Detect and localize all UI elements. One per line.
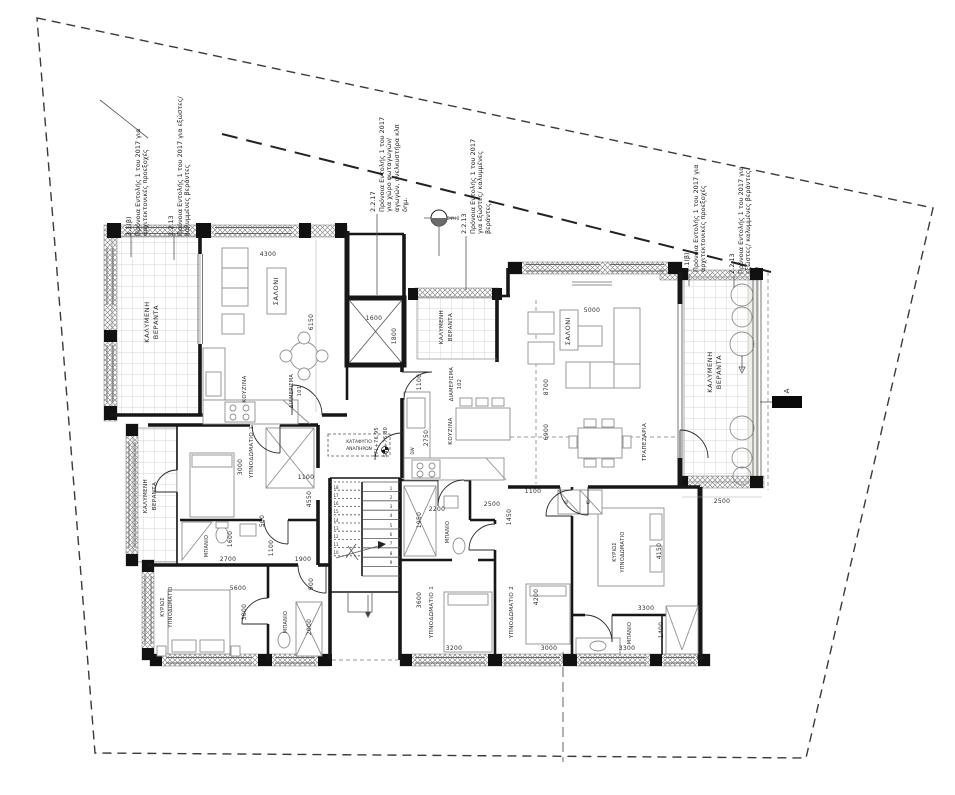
dim: 1100: [416, 374, 423, 390]
toilet: [278, 632, 290, 648]
room-label: ΜΠΑΝΙΟ: [445, 521, 451, 543]
dim: 3000: [237, 459, 244, 475]
dim: 1100: [525, 488, 541, 495]
room-label: ΣΑΛΟΝΙ: [272, 277, 280, 306]
room-label: ΚΟΥΖΙΝΑ: [448, 417, 454, 444]
stair-step: 12: [333, 534, 339, 539]
dim: 3000: [241, 604, 248, 620]
room-label: ΚΑΛΥΜΕΝΗ: [143, 301, 151, 342]
dim: 5000: [584, 307, 600, 314]
dim: 2500: [484, 501, 500, 508]
stair-step: 3: [390, 504, 393, 509]
dim: 3000: [541, 645, 557, 652]
ffl-level: FFL+76,95: [374, 427, 380, 457]
annotation-code: 3.1(β): [684, 160, 692, 272]
dim: 1900: [295, 556, 311, 563]
dim: 2750: [423, 430, 430, 446]
dim: 900: [308, 578, 315, 590]
annotation-text: Πρόνοια Εντολής 1 του 2017 για αρχιτεκτο…: [134, 129, 150, 236]
stair-step: 18: [333, 485, 339, 490]
shelter-label: ΚΑΤΑΦΥΓΙΟ: [346, 439, 372, 445]
dim: 2500: [714, 498, 730, 505]
room-label: ΚΥΡΙΩΣ: [160, 597, 166, 617]
shower: [666, 606, 698, 654]
dim: 2700: [220, 556, 236, 563]
dim: 3200: [446, 645, 462, 652]
room-label: ΚΑΛΥΜΕΝΗ: [439, 310, 445, 344]
annotation-arch-projections-left: 3.1(β) Πρόνοια Εντολής 1 του 2017 για αρ…: [126, 76, 150, 236]
apartment-label: ΔΙΑΜΕΡΙΣΜΑ: [289, 374, 295, 408]
stair-step: 16: [333, 501, 339, 506]
stair-step: 13: [333, 526, 339, 531]
annotation-verandas-left: 2.2.13 Πρόνοια Εντολής 1 του 2017 για εξ…: [168, 76, 192, 236]
annotation-elevator-middle: 2.2.17 Πρόνοια Εντολής 1 του 2017 για χώ…: [370, 112, 409, 212]
stair-step: 10: [333, 550, 339, 555]
kitchen-counter: [404, 392, 430, 458]
dim: 4300: [260, 251, 276, 258]
dishwasher-label: DW: [410, 447, 415, 454]
room-label: ΣΑΛΟΝΙ: [564, 317, 572, 346]
dim: 3600: [416, 592, 423, 608]
wardrobe-label: W: [564, 500, 568, 505]
section-marker-label: A: [783, 388, 791, 393]
stair-step: 14: [333, 518, 339, 523]
room-label: ΥΠΝΟΔΩΜΑΤΙΟ: [620, 531, 626, 573]
apartment-number: 101: [297, 386, 303, 396]
armchair: [222, 314, 244, 334]
stair-step: 5: [390, 523, 393, 528]
room-label: ΚΥΡΙΩΣ: [612, 542, 618, 562]
veranda-middle: [417, 297, 497, 359]
annotation-text: Πρόνοια Εντολής 1 του 2017 για εξώστες/ …: [737, 167, 753, 274]
bed: [168, 590, 230, 654]
armchair: [528, 342, 554, 364]
annotation-verandas-right: 2.2.13 Πρόνοια Εντολής 1 του 2017 για εξ…: [729, 162, 753, 274]
annotation-arch-projections-right: 3.1(β) Πρόνοια Εντολής 1 του 2017 για αρ…: [684, 160, 708, 272]
annotation-code: 2.2.13: [729, 162, 737, 274]
room-label: ΚΑΛΥΜΕΝΗ: [706, 351, 714, 392]
room-label: ΒΕΡΑΝΤΑ: [152, 305, 160, 339]
room-label: ΥΠΝΟΔΩΜΑΤΙΟ 1: [429, 586, 435, 639]
dim: 3300: [638, 605, 654, 612]
dim: 2000: [306, 619, 313, 635]
room-label: ΒΕΡΑΝΤΑ: [152, 482, 158, 510]
stair-step: 2: [390, 495, 393, 500]
dim: 1600: [227, 531, 234, 547]
bed: [444, 592, 492, 652]
round-table: [290, 342, 318, 370]
dim: 6150: [308, 314, 315, 330]
floor-plan-sheet: ΚΑΛΥΜΕΝΗ ΒΕΡΑΝΤΑ ΚΑΛΥΜΕΝΗ ΒΕΡΑΝΤΑ ΚΑΛΥΜΕ…: [0, 0, 955, 795]
dining-table: [578, 428, 622, 458]
dim: 5600: [230, 585, 246, 592]
dim: 3300: [619, 645, 635, 652]
bed: [598, 508, 664, 586]
shelter-label: ΑΝΑΠΗΡΩΝ: [346, 446, 372, 452]
armchair: [528, 312, 554, 334]
annotation-text: Πρόνοια Εντολής 1 του 2017 για εξώστες/ …: [176, 96, 192, 236]
dim: 4200: [533, 589, 540, 605]
basin: [240, 524, 256, 536]
dim: 4550: [306, 491, 313, 507]
dim: 4150: [656, 543, 663, 559]
staircase: [330, 482, 400, 618]
annotation-code: 2.2.13: [168, 76, 176, 236]
coffee-table: [576, 326, 602, 346]
stair-step: 15: [333, 509, 339, 514]
shelter-box: [328, 434, 390, 456]
annotation-text: Πρόνοια Εντολής 1 του 2017 για αρχιτεκτο…: [692, 165, 708, 272]
stair-step: 1: [390, 486, 393, 491]
annotation-code: 2.2.17: [370, 112, 378, 212]
ssl-level: SSL+76,80: [383, 427, 389, 457]
section-flag: [772, 396, 802, 408]
elevation-marker-label: ΟΨΗ 2: [446, 216, 460, 221]
dim: 500: [259, 515, 266, 527]
room-label: ΤΡΑΠΕΖΑΡΙΑ: [642, 423, 648, 462]
wardrobe-label: W: [586, 500, 590, 505]
room-label: ΒΕΡΑΝΤΑ: [715, 355, 723, 389]
bed: [190, 453, 234, 517]
stair-step: 9: [390, 560, 393, 565]
room-label: ΜΠΑΝΙΟ: [204, 535, 210, 557]
room-label: ΚΑΛΥΜΕΝΗ: [143, 479, 149, 513]
annotation-verandas-middle: 2.2.13 Πρόνοια Εντολής 1 του 2017 για εξ…: [461, 134, 493, 234]
kitchen-island: [456, 408, 510, 440]
sofa: [222, 248, 248, 306]
stair-step: 11: [333, 542, 339, 547]
annotation-text: Πρόνοια Εντολής 1 του 2017 για εξώστες/ …: [469, 139, 492, 234]
room-label: ΥΠΝΟΔΩΜΑΤΙΟ: [168, 586, 174, 628]
annotation-code: 2.2.13: [461, 134, 469, 234]
dim: 1800: [391, 328, 398, 344]
annotation-text: Πρόνοια Εντολής 1 του 2017 για χώρο φωτα…: [378, 117, 409, 212]
room-label: ΜΠΑΝΙΟ: [283, 611, 289, 633]
dim: 2200: [429, 506, 445, 513]
dim: 6900: [543, 424, 550, 440]
annotation-code: 3.1(β): [126, 76, 134, 236]
dim: 1100: [298, 474, 314, 481]
room-label: ΥΠΝΟΔΩΜΑΤΙΟ 2: [509, 586, 515, 639]
stair-step: 17: [333, 493, 339, 498]
stair-step: 4: [390, 513, 393, 518]
stair-step: 8: [390, 551, 393, 556]
toilet: [453, 538, 465, 554]
dim: 1100: [268, 540, 275, 556]
room-label: ΒΕΡΑΝΤΑ: [448, 313, 454, 341]
dim: 1600: [366, 315, 382, 322]
apartment-number: 102: [457, 379, 463, 389]
dim: 1400: [658, 622, 665, 638]
dim: 1450: [506, 509, 513, 525]
room-label: ΥΠΝΟΔΩΜΑΤΙΟ 1: [249, 426, 255, 479]
stair-numbers: 1 2 3 4 5 6 7 8 9 18 17 16 15 14 13 12 1…: [333, 485, 392, 565]
apartment-label: ΔΙΑΜΕΡΙΣΜΑ: [449, 367, 455, 401]
room-label: ΜΠΑΝΙΟ: [627, 622, 633, 644]
room-label: ΚΟΥΖΙΝΑ: [242, 375, 248, 402]
stair-step: 7: [390, 541, 393, 546]
sofa: [566, 362, 640, 388]
stair-step: 6: [390, 532, 393, 537]
basin: [444, 496, 458, 508]
dim: 1950: [416, 512, 423, 528]
dim: 8700: [543, 379, 550, 395]
